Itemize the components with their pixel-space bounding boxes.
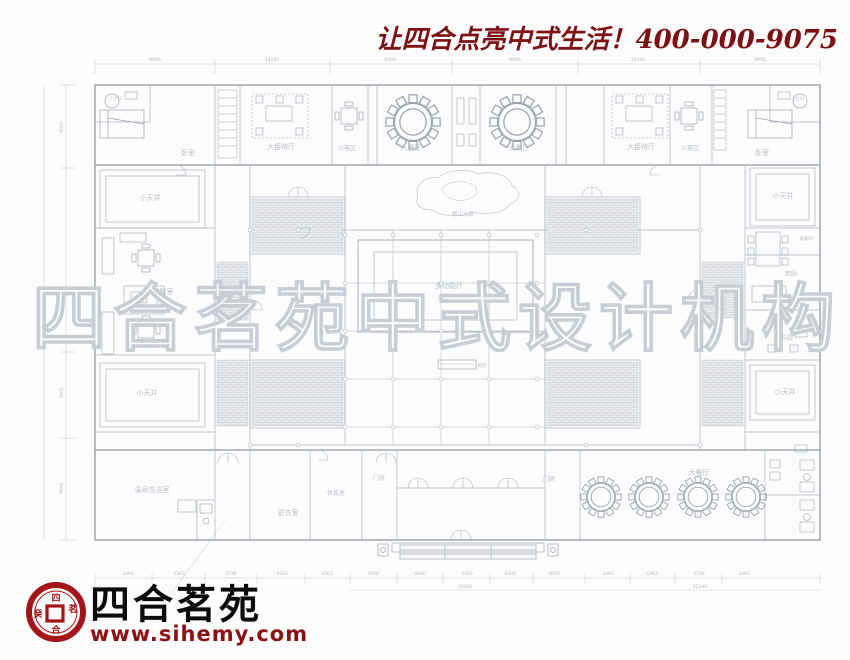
dim-top-4: 9000 bbox=[509, 57, 521, 63]
dim-bottom-1: 4364 bbox=[122, 571, 134, 577]
dim-top-2: 14100 bbox=[265, 57, 279, 63]
room-label-dining-top-left: 大餐厅 bbox=[401, 143, 422, 152]
room-label-rockery: 假山水景 bbox=[452, 210, 475, 218]
room-label-dining-top-right: 大餐厅 bbox=[509, 143, 530, 152]
room-label-pantry: 备餐间 bbox=[799, 235, 813, 242]
dim-left-3: 3900 bbox=[59, 387, 65, 399]
logo-seal-icon: 四 癸 茗 合 bbox=[29, 585, 83, 639]
dim-bottom-3: 4736 bbox=[225, 571, 237, 577]
room-label-courtyard-bl: 小天井 bbox=[137, 388, 158, 397]
room-label-bath-right: 卫生间 bbox=[792, 95, 804, 101]
dim-bottom-4: 4363 bbox=[276, 571, 288, 577]
room-label-screen-wall: 照壁 bbox=[478, 362, 487, 369]
room-label-courtyard-tl: 小天井 bbox=[140, 193, 161, 202]
dim-bottom-12: 4363 bbox=[646, 571, 658, 577]
room-label-gatehouse-right: 门房 bbox=[543, 475, 555, 483]
rockery-outline bbox=[417, 171, 519, 216]
room-label-reception-right: 大接待厅 bbox=[627, 142, 655, 151]
room-label-changing-room: 更衣室 bbox=[278, 508, 299, 517]
room-label-courtyard-tr: 小天井 bbox=[773, 191, 794, 200]
seal-char-right: 茗 bbox=[67, 603, 77, 615]
floorplan-svg: 9000 14100 9000 9000 14100 9000 6000 127… bbox=[0, 0, 850, 660]
dim-bottom-5: 4363 bbox=[321, 571, 333, 577]
dim-bottom-9: 4000 bbox=[504, 571, 516, 577]
room-label-dining-bottom: 大餐厅 bbox=[689, 468, 710, 477]
room-label-bath-left: 卫生间 bbox=[110, 95, 122, 101]
logo-website-text: www.sihemy.com bbox=[90, 622, 308, 646]
dim-top-5: 14100 bbox=[631, 57, 645, 63]
dim-top-6: 9000 bbox=[754, 57, 766, 63]
dim-bottom-13: 4736 bbox=[693, 571, 705, 577]
dim-bottom-14: 4363 bbox=[738, 571, 750, 577]
room-label-bedroom-left: 卧室 bbox=[181, 148, 195, 157]
dim-bottom-2: 4363 bbox=[173, 571, 185, 577]
dim-top-1: 9000 bbox=[149, 57, 161, 63]
room-label-guest-left: 公客区 bbox=[338, 144, 356, 152]
watermark-text: 四合茗苑中式设计机构 bbox=[32, 276, 842, 362]
dim-left-1: 6000 bbox=[59, 121, 65, 133]
room-label-courtyard-br: 小天井 bbox=[775, 387, 796, 396]
room-label-bedroom-right: 卧室 bbox=[755, 148, 769, 157]
dim-bottom-10: 4000 bbox=[548, 571, 560, 577]
drawing-sheet: 9000 14100 9000 9000 14100 9000 6000 127… bbox=[0, 0, 850, 660]
dim-left-4: 9000 bbox=[59, 482, 65, 494]
logo-brand-text: 四合茗苑 bbox=[90, 581, 262, 628]
dim-bottom-total-1: 20300 bbox=[458, 584, 472, 590]
slogan-text: 让四合点亮中式生活！400-000-9075 bbox=[376, 25, 839, 55]
dim-top-3: 9000 bbox=[384, 57, 396, 63]
seal-char-top: 四 bbox=[51, 593, 60, 604]
logo: 四 癸 茗 合 四合茗苑 www.sihemy.com bbox=[29, 581, 308, 646]
seal-char-left: 癸 bbox=[32, 608, 43, 620]
dim-bottom-total-2: 22190 bbox=[693, 584, 707, 590]
dim-bottom-6: 4000 bbox=[367, 571, 379, 577]
dim-bottom-7: 4000 bbox=[414, 571, 426, 577]
dim-bottom-11: 4363 bbox=[602, 571, 614, 577]
seal-char-bottom: 合 bbox=[51, 624, 61, 636]
room-label-spa-bath: 温泉洗浴室 bbox=[135, 485, 170, 494]
room-label-guest-right: 公客区 bbox=[681, 144, 699, 152]
room-label-lounge: 休息室 bbox=[327, 489, 345, 497]
dim-bottom-8: 4300 bbox=[461, 571, 473, 577]
room-label-reception-left: 大接待厅 bbox=[267, 142, 295, 151]
room-label-gatehouse-left: 门房 bbox=[373, 474, 385, 482]
